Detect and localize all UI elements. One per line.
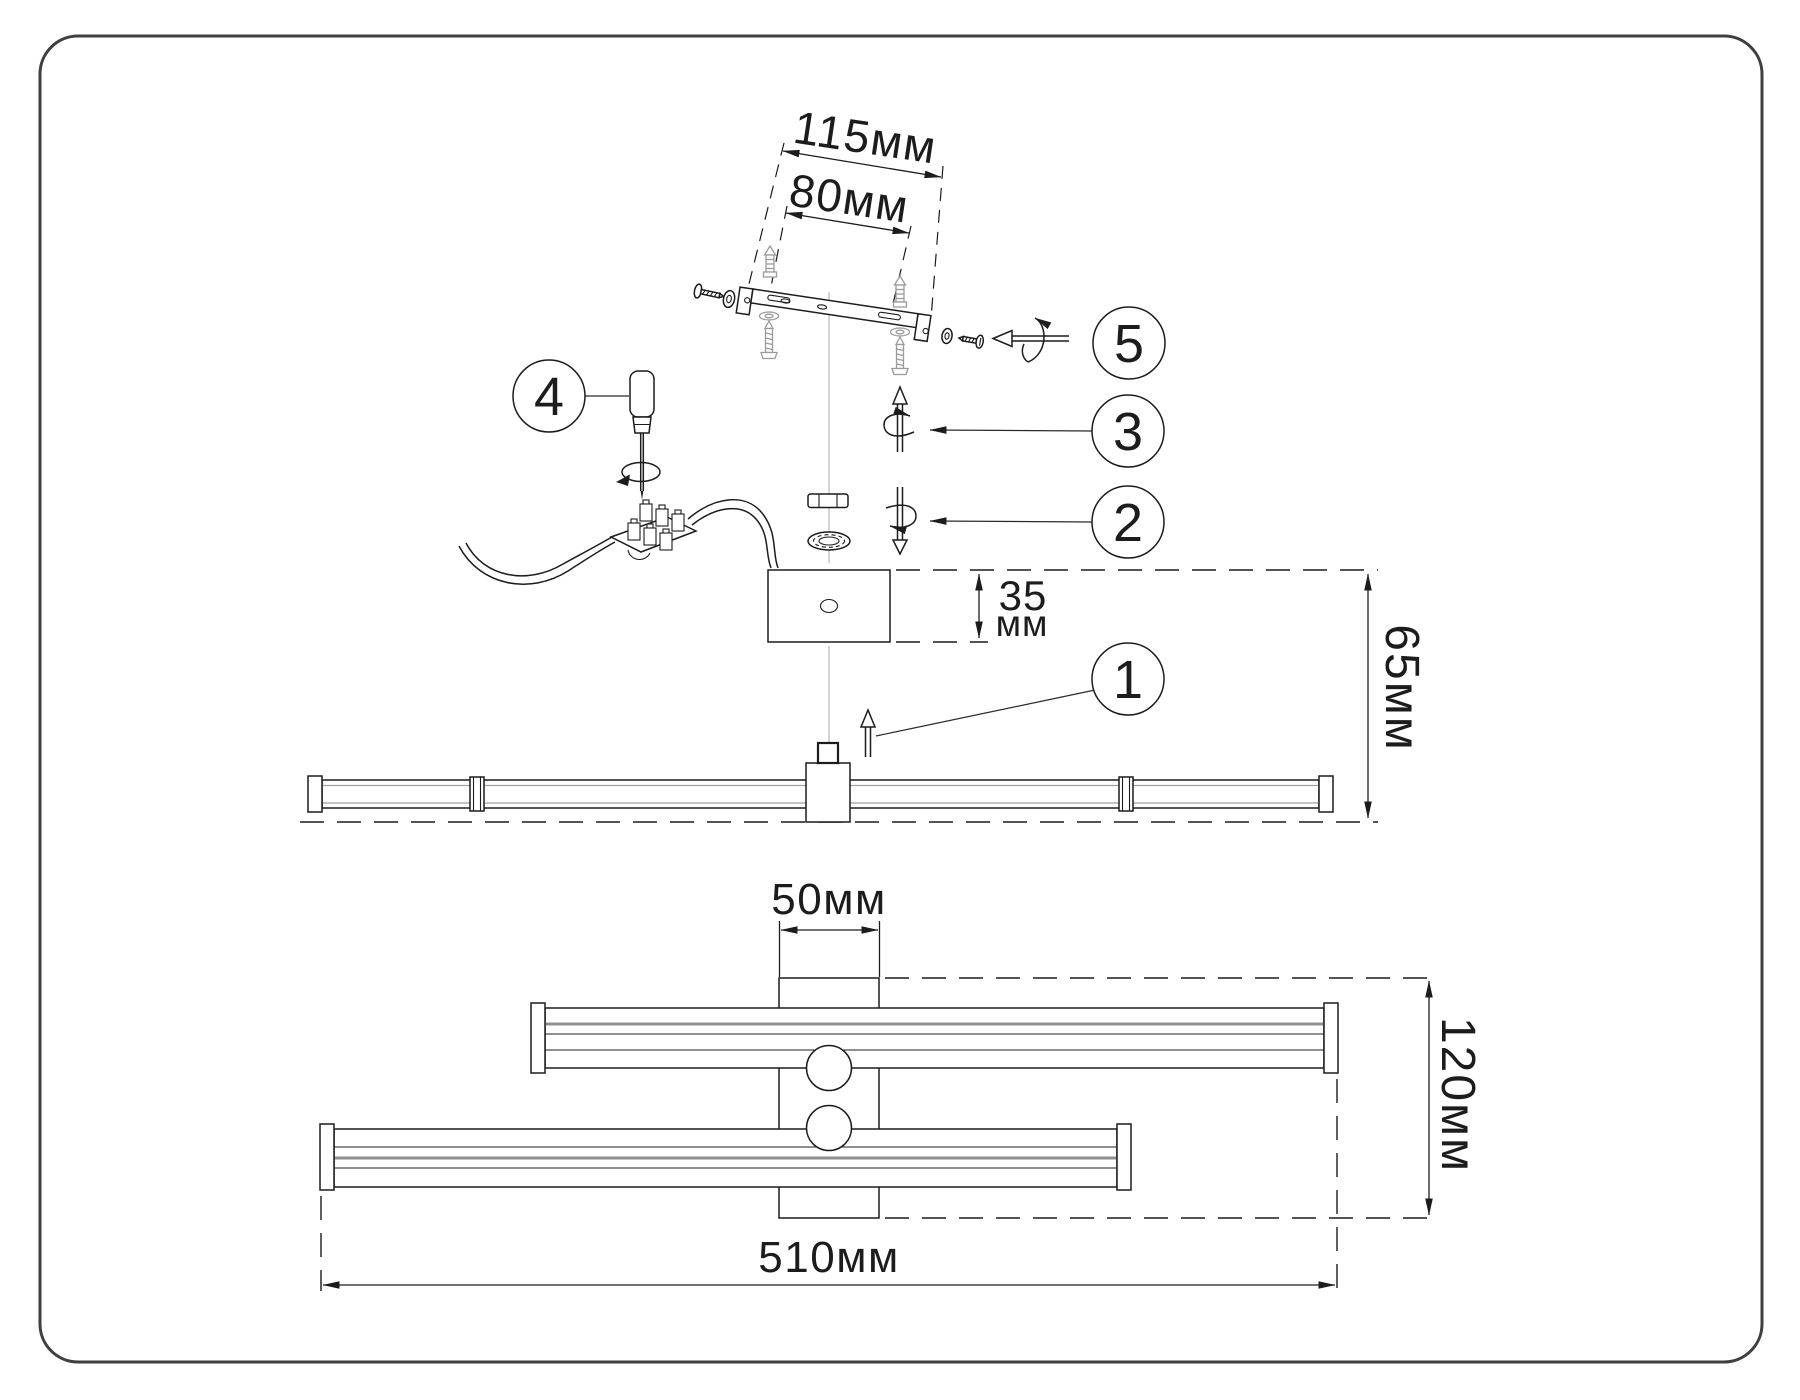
end-cap-icon <box>1319 776 1333 812</box>
ball-joint-icon <box>807 1106 852 1151</box>
end-cap-icon <box>1117 1124 1131 1190</box>
dim-65mm-label: 65мм <box>1375 624 1428 751</box>
step-4-number: 4 <box>534 367 564 427</box>
step-1-number: 1 <box>1113 650 1143 710</box>
joint-ring-icon <box>470 777 484 811</box>
ball-joint-icon <box>807 1046 852 1091</box>
dim-35mm-unit: мм <box>996 603 1049 644</box>
center-block-icon <box>806 763 850 822</box>
end-cap-icon <box>320 1124 334 1190</box>
dim-510mm-label: 510мм <box>758 1233 899 1282</box>
step-balloon-5: 5 <box>1093 307 1165 379</box>
mount-stem-icon <box>818 743 838 763</box>
end-cap-icon <box>308 776 322 812</box>
end-cap-icon <box>1324 1003 1338 1073</box>
lock-washer-icon <box>808 532 850 550</box>
hex-nut-icon <box>808 494 848 508</box>
step-3-number: 3 <box>1113 402 1143 462</box>
lamp-bar-top <box>531 1003 1338 1073</box>
step-2-number: 2 <box>1113 493 1143 553</box>
joint-ring-icon <box>1119 777 1133 811</box>
dim-50mm-label: 50мм <box>771 875 886 924</box>
assembly-diagram: 115мм 80мм <box>0 0 1800 1400</box>
lamp-bar-bottom <box>320 1124 1131 1190</box>
end-cap-icon <box>531 1003 545 1073</box>
canopy-box-icon <box>768 570 890 642</box>
dim-120mm-label: 120мм <box>1431 1017 1484 1173</box>
step-5-number: 5 <box>1114 314 1144 374</box>
